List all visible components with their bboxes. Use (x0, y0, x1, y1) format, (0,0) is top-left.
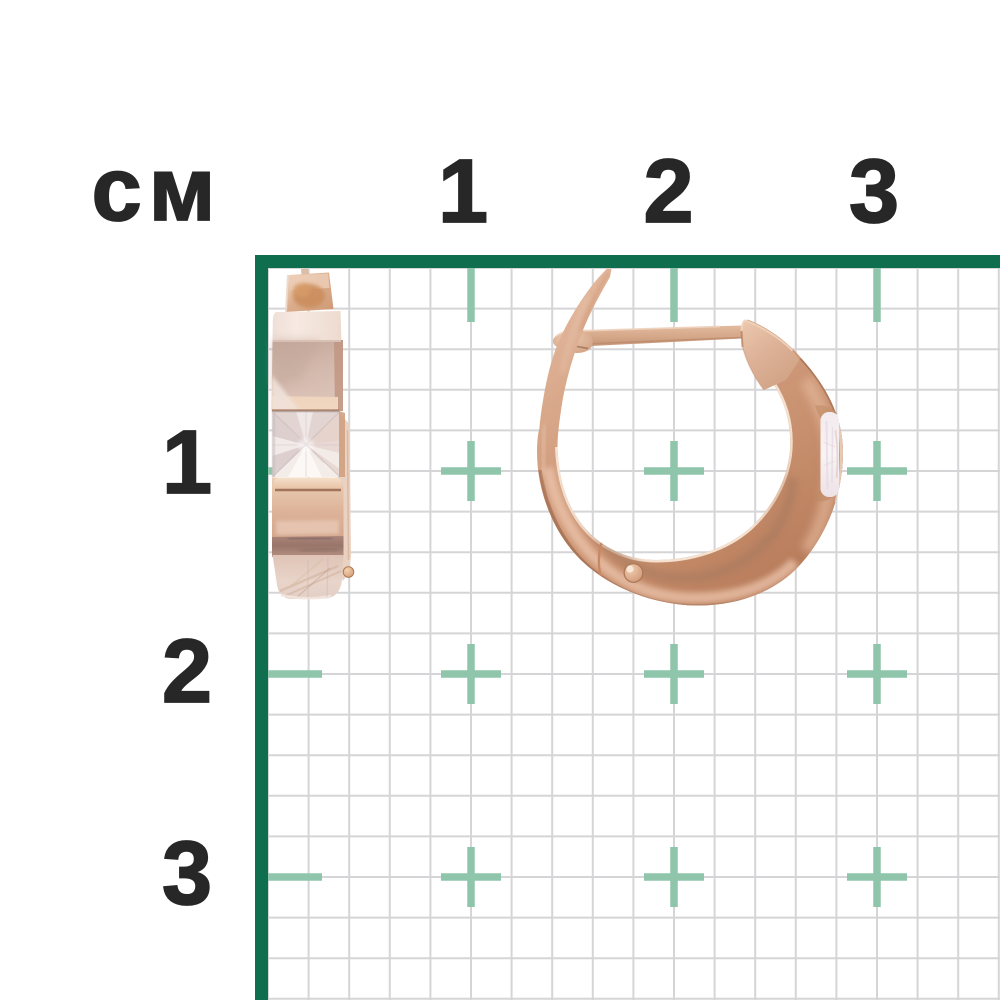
svg-text:см: см (92, 140, 223, 240)
svg-text:1: 1 (162, 413, 212, 513)
svg-text:3: 3 (849, 142, 899, 242)
svg-text:2: 2 (162, 622, 212, 722)
svg-text:1: 1 (438, 142, 488, 242)
svg-text:3: 3 (162, 824, 212, 924)
svg-text:2: 2 (643, 142, 693, 242)
